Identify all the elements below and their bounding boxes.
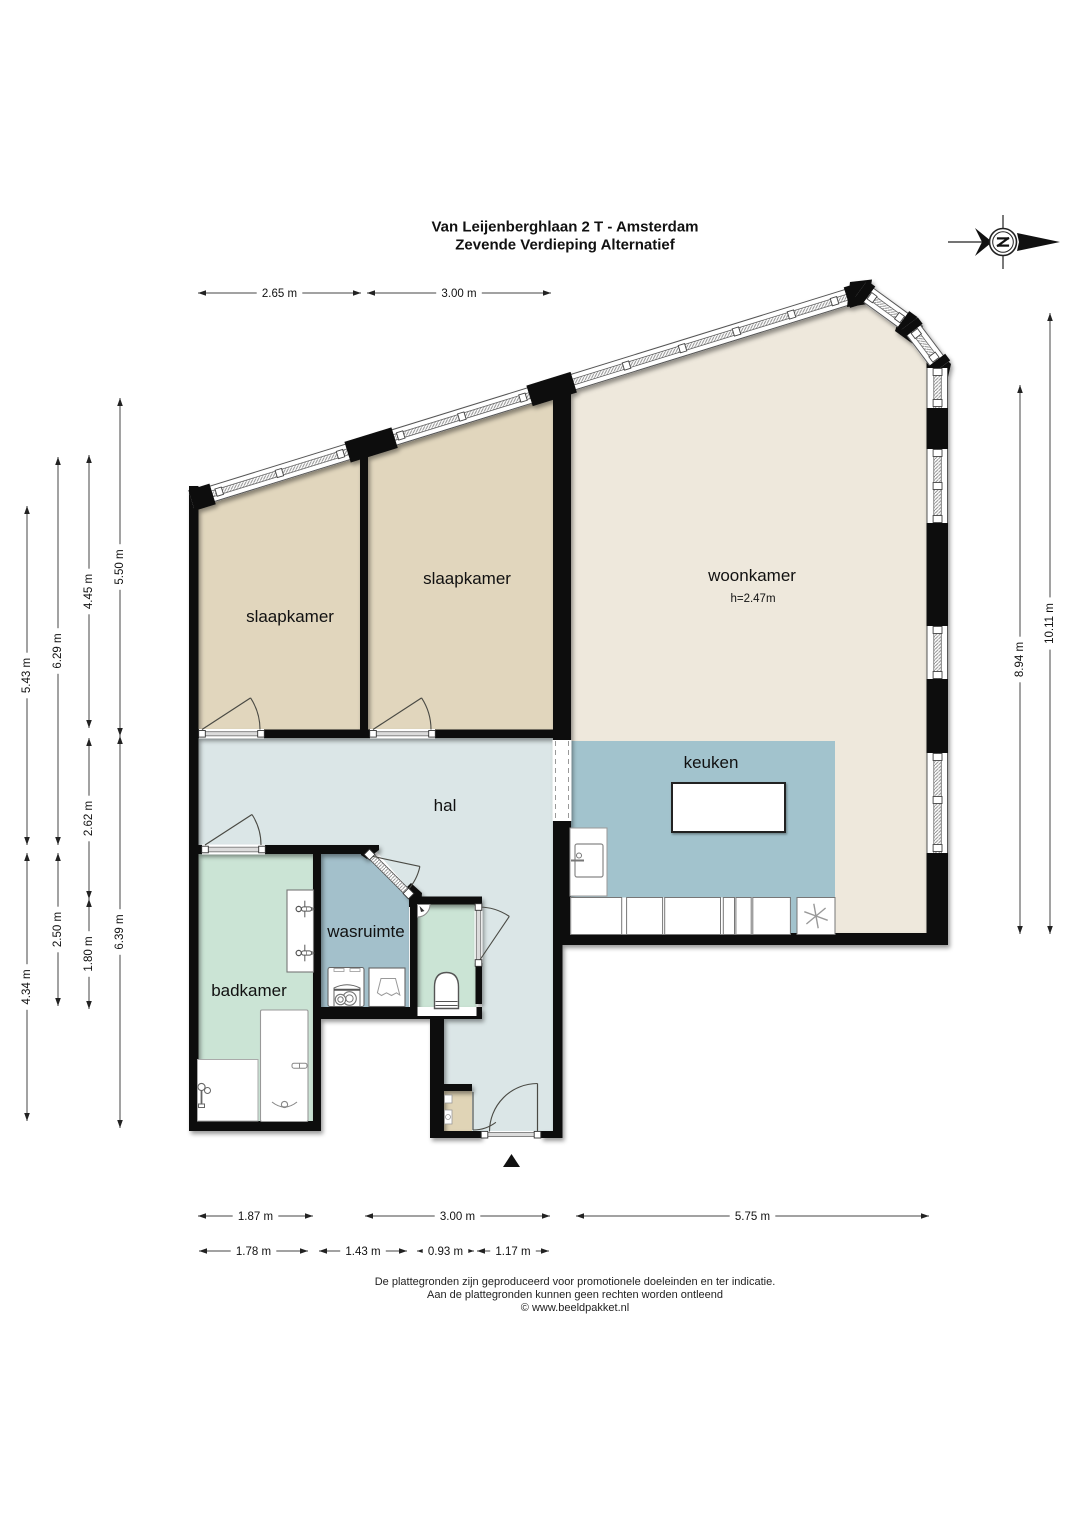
svg-text:3.00 m: 3.00 m — [440, 1211, 475, 1223]
svg-text:1.78 m: 1.78 m — [236, 1246, 271, 1258]
svg-text:6.29 m: 6.29 m — [52, 633, 64, 668]
svg-text:1.80 m: 1.80 m — [83, 936, 95, 971]
svg-text:© www.beeldpakket.nl: © www.beeldpakket.nl — [521, 1302, 629, 1314]
svg-text:1.87 m: 1.87 m — [238, 1211, 273, 1223]
svg-text:slaapkamer: slaapkamer — [246, 607, 334, 626]
svg-text:0.93 m: 0.93 m — [428, 1246, 463, 1258]
svg-text:3.00 m: 3.00 m — [441, 288, 476, 300]
svg-text:2.62 m: 2.62 m — [83, 801, 95, 836]
svg-text:woonkamer: woonkamer — [707, 566, 796, 585]
svg-text:badkamer: badkamer — [211, 981, 287, 1000]
svg-text:10.11 m: 10.11 m — [1044, 603, 1056, 644]
svg-text:5.50 m: 5.50 m — [114, 549, 126, 584]
svg-text:De plattegronden zijn geproduc: De plattegronden zijn geproduceerd voor … — [375, 1276, 776, 1288]
svg-text:5.43 m: 5.43 m — [21, 658, 33, 693]
svg-text:6.39 m: 6.39 m — [114, 914, 126, 949]
svg-text:Van Leijenberghlaan 2 T - Amst: Van Leijenberghlaan 2 T - Amsterdam — [431, 219, 698, 236]
svg-text:keuken: keuken — [684, 753, 739, 772]
svg-text:1.43 m: 1.43 m — [345, 1246, 380, 1258]
svg-text:Zevende Verdieping Alternatief: Zevende Verdieping Alternatief — [455, 237, 676, 254]
svg-text:slaapkamer: slaapkamer — [423, 569, 511, 588]
svg-text:2.50 m: 2.50 m — [52, 912, 64, 947]
svg-text:2.65 m: 2.65 m — [262, 288, 297, 300]
svg-text:h=2.47m: h=2.47m — [730, 593, 775, 605]
svg-text:8.94 m: 8.94 m — [1014, 642, 1026, 677]
svg-text:5.75 m: 5.75 m — [735, 1211, 770, 1223]
svg-text:4.45 m: 4.45 m — [83, 574, 95, 609]
svg-text:hal: hal — [434, 796, 457, 815]
svg-text:4.34 m: 4.34 m — [21, 969, 33, 1004]
svg-text:Aan de plattegronden kunnen ge: Aan de plattegronden kunnen geen rechten… — [427, 1289, 723, 1301]
svg-text:wasruimte: wasruimte — [326, 922, 404, 941]
svg-text:1.17 m: 1.17 m — [495, 1246, 530, 1258]
